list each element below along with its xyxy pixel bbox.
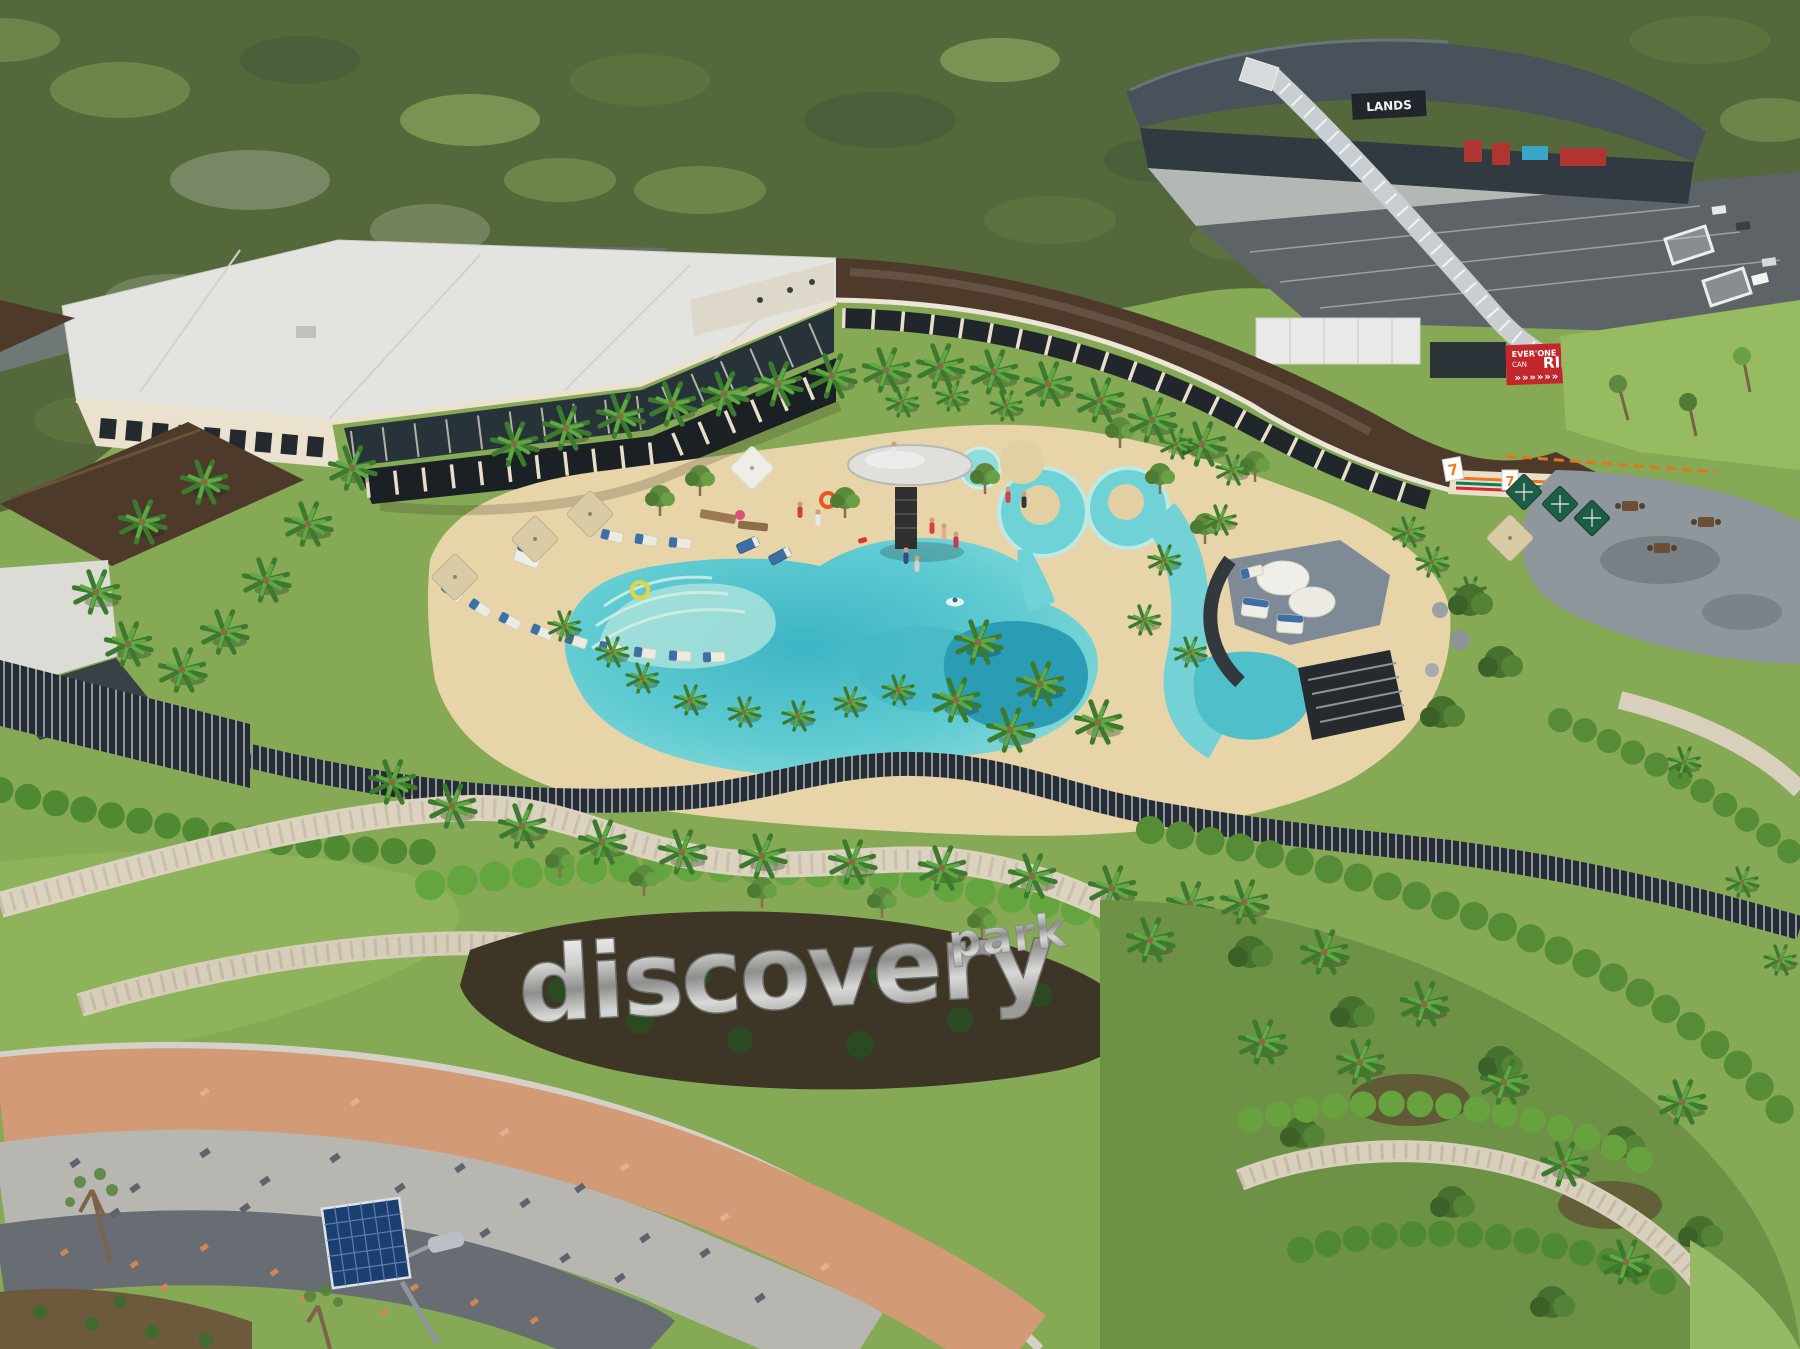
person [1021, 491, 1026, 508]
person [953, 531, 958, 548]
seven-eleven-corner-logo: 7 [1442, 457, 1464, 482]
person [941, 523, 946, 540]
swimmer-head [953, 598, 958, 603]
island-daybed [1241, 597, 1269, 618]
lounge-chair [669, 537, 692, 549]
lounge-chair [703, 652, 725, 663]
person [1005, 486, 1010, 503]
dark-window-band [1430, 342, 1506, 378]
island-daybed [1276, 614, 1303, 634]
person [929, 517, 934, 534]
aerial-resort-photo: Aerial drone photograph of a tropical re… [0, 0, 1800, 1349]
wet-patch-2 [1702, 594, 1782, 630]
venue-sign-board: LANDS [1351, 90, 1426, 120]
solar-panel [322, 1198, 410, 1288]
venue-sign-text: LANDS [1366, 98, 1412, 114]
person [815, 509, 820, 526]
pink-towel [735, 510, 745, 520]
sand-mound [1000, 440, 1044, 484]
person [891, 441, 896, 458]
billboard-arrows: »»»»»» [1514, 371, 1559, 384]
kids-pool-2-island [1108, 484, 1144, 520]
person [797, 501, 802, 518]
person [903, 547, 908, 564]
island-umbrella-2 [1289, 587, 1335, 617]
person [914, 555, 919, 572]
fountain-column [895, 487, 917, 549]
lounge-chair [669, 650, 691, 661]
billboard-mid-text: CAN [1512, 361, 1527, 370]
white-service-building [1256, 318, 1420, 364]
fountain-shadow [880, 542, 964, 562]
rooftop-ac-unit [296, 326, 316, 338]
